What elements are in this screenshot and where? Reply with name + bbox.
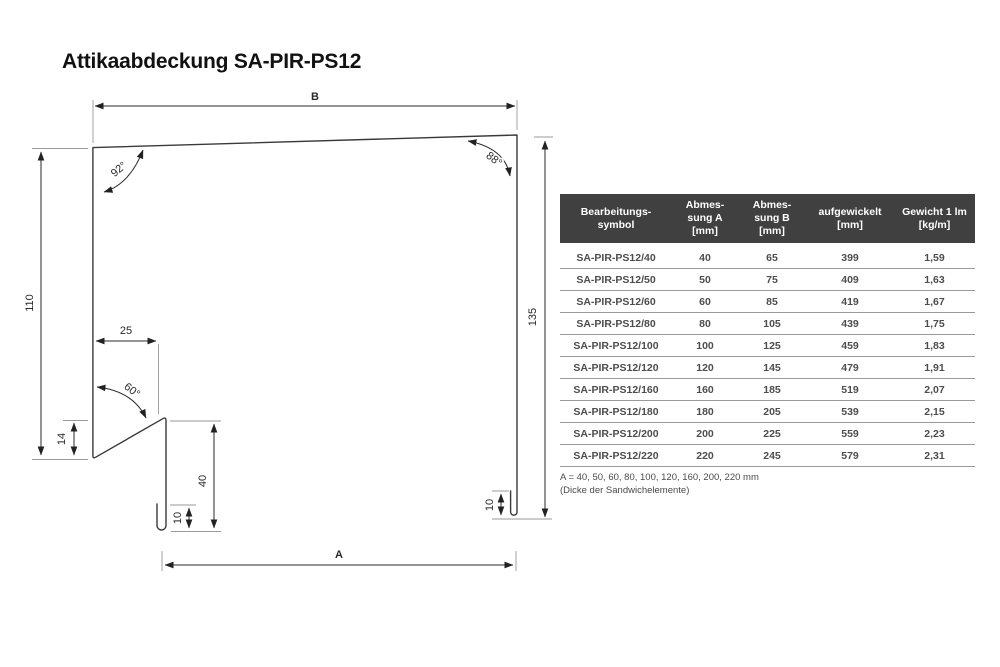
cell-symbol: SA-PIR-PS12/60	[560, 291, 672, 312]
cell-weight: 2,31	[894, 445, 975, 466]
dimension-kink-offset: 25	[96, 325, 159, 414]
dimension-left-hem: 10	[170, 505, 196, 528]
angle-60: 60°	[97, 381, 146, 418]
table-row: SA-PIR-PS12/180 180 205 539 2,15	[560, 401, 975, 423]
table-row: SA-PIR-PS12/160 160 185 519 2,07	[560, 379, 975, 401]
dimension-right-hem: 10	[484, 491, 509, 515]
table-row: SA-PIR-PS12/100 100 125 459 1,83	[560, 335, 975, 357]
cell-a: 200	[672, 423, 738, 444]
angle-60-label: 60°	[122, 381, 143, 401]
cell-coil: 409	[806, 269, 894, 290]
cell-weight: 1,59	[894, 247, 975, 268]
cell-coil: 479	[806, 357, 894, 378]
dim-10-left-label: 10	[172, 512, 184, 524]
cell-weight: 1,91	[894, 357, 975, 378]
dim-110-label: 110	[24, 294, 36, 312]
table-row: SA-PIR-PS12/40 40 65 399 1,59	[560, 247, 975, 269]
cell-a: 220	[672, 445, 738, 466]
cell-a: 50	[672, 269, 738, 290]
cell-weight: 1,83	[894, 335, 975, 356]
cell-symbol: SA-PIR-PS12/50	[560, 269, 672, 290]
cell-a: 120	[672, 357, 738, 378]
table-row: SA-PIR-PS12/200 200 225 559 2,23	[560, 423, 975, 445]
dimension-right-height: 135	[492, 137, 553, 519]
cell-b: 105	[738, 313, 806, 334]
cell-coil: 519	[806, 379, 894, 400]
header-aufgewickelt: aufgewickelt [mm]	[806, 194, 894, 243]
dimension-left-height: 110	[24, 149, 88, 460]
cell-b: 205	[738, 401, 806, 422]
cell-b: 145	[738, 357, 806, 378]
cell-b: 125	[738, 335, 806, 356]
cell-a: 160	[672, 379, 738, 400]
cell-symbol: SA-PIR-PS12/100	[560, 335, 672, 356]
cell-weight: 1,67	[894, 291, 975, 312]
footnote-line-1: A = 40, 50, 60, 80, 100, 120, 160, 200, …	[560, 472, 975, 485]
cell-symbol: SA-PIR-PS12/160	[560, 379, 672, 400]
header-bearbeitungssymbol: Bearbeitungs- symbol	[560, 194, 672, 243]
cell-coil: 459	[806, 335, 894, 356]
cell-weight: 2,07	[894, 379, 975, 400]
cell-b: 185	[738, 379, 806, 400]
dim-25-label: 25	[120, 325, 132, 337]
table-row: SA-PIR-PS12/120 120 145 479 1,91	[560, 357, 975, 379]
cell-a: 60	[672, 291, 738, 312]
cell-coil: 579	[806, 445, 894, 466]
cell-weight: 1,75	[894, 313, 975, 334]
cell-a: 100	[672, 335, 738, 356]
footnote-line-2: (Dicke der Sandwichelemente)	[560, 485, 975, 498]
header-gewicht: Gewicht 1 lm [kg/m]	[894, 194, 975, 243]
dimension-a: A	[162, 549, 516, 571]
datasheet-page: Attikaabdeckung SA-PIR-PS12 B 110 14	[0, 0, 1000, 667]
dim-14-label: 14	[56, 433, 68, 445]
cell-symbol: SA-PIR-PS12/200	[560, 423, 672, 444]
cell-coil: 399	[806, 247, 894, 268]
angle-92: 92°	[104, 150, 143, 192]
profile-outline	[93, 135, 517, 530]
cell-symbol: SA-PIR-PS12/120	[560, 357, 672, 378]
cell-coil: 559	[806, 423, 894, 444]
header-abmessung-b: Abmes- sung B [mm]	[738, 194, 806, 243]
cell-coil: 539	[806, 401, 894, 422]
table-row: SA-PIR-PS12/220 220 245 579 2,31	[560, 445, 975, 467]
cell-coil: 439	[806, 313, 894, 334]
angle-92-label: 92°	[109, 160, 129, 180]
cell-a: 180	[672, 401, 738, 422]
cell-b: 85	[738, 291, 806, 312]
spec-table: Bearbeitungs- symbol Abmes- sung A [mm] …	[560, 194, 975, 498]
dim-40-label: 40	[197, 475, 209, 487]
table-body: SA-PIR-PS12/40 40 65 399 1,59 SA-PIR-PS1…	[560, 247, 975, 467]
cell-coil: 419	[806, 291, 894, 312]
table-row: SA-PIR-PS12/50 50 75 409 1,63	[560, 269, 975, 291]
dim-a-label: A	[335, 549, 343, 561]
cell-a: 80	[672, 313, 738, 334]
table-footnote: A = 40, 50, 60, 80, 100, 120, 160, 200, …	[560, 472, 975, 498]
cell-weight: 2,15	[894, 401, 975, 422]
dim-135-label: 135	[527, 308, 539, 326]
dimension-kink-height: 14	[56, 421, 88, 456]
cell-symbol: SA-PIR-PS12/180	[560, 401, 672, 422]
angle-88: 88°	[468, 141, 510, 176]
table-row: SA-PIR-PS12/60 60 85 419 1,67	[560, 291, 975, 313]
cell-weight: 1,63	[894, 269, 975, 290]
dim-10-right-label: 10	[484, 499, 496, 511]
angle-88-label: 88°	[484, 150, 505, 170]
header-abmessung-a: Abmes- sung A [mm]	[672, 194, 738, 243]
cell-symbol: SA-PIR-PS12/40	[560, 247, 672, 268]
cell-b: 245	[738, 445, 806, 466]
dim-b-label: B	[311, 91, 319, 103]
cell-symbol: SA-PIR-PS12/220	[560, 445, 672, 466]
table-header-row: Bearbeitungs- symbol Abmes- sung A [mm] …	[560, 194, 975, 243]
dimension-b: B	[93, 91, 517, 143]
cell-b: 75	[738, 269, 806, 290]
cell-symbol: SA-PIR-PS12/80	[560, 313, 672, 334]
cell-a: 40	[672, 247, 738, 268]
cell-weight: 2,23	[894, 423, 975, 444]
cell-b: 225	[738, 423, 806, 444]
cell-b: 65	[738, 247, 806, 268]
table-row: SA-PIR-PS12/80 80 105 439 1,75	[560, 313, 975, 335]
